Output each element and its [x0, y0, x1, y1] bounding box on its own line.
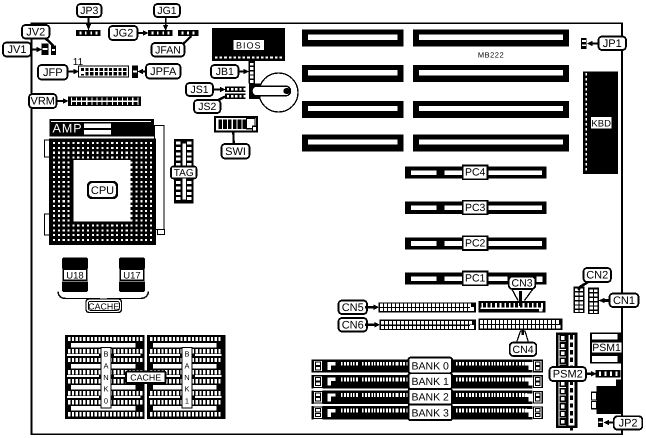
svg-text:JV1: JV1 [8, 44, 27, 56]
svg-text:CN5: CN5 [342, 302, 364, 314]
svg-text:CN6: CN6 [342, 319, 364, 331]
svg-text:BIOS: BIOS [236, 40, 262, 50]
svg-text:K: K [103, 385, 108, 394]
svg-text:BANK 1: BANK 1 [412, 376, 450, 388]
svg-text:JP2: JP2 [619, 418, 638, 430]
svg-text:JPFA: JPFA [150, 66, 177, 78]
svg-text:PSM1: PSM1 [592, 342, 621, 354]
svg-text:JV2: JV2 [26, 26, 45, 38]
svg-text:PC4: PC4 [465, 167, 486, 179]
svg-text:JP1: JP1 [603, 38, 622, 50]
svg-text:CACHE: CACHE [88, 301, 119, 311]
svg-text:CN4: CN4 [513, 344, 534, 356]
svg-text:JG2: JG2 [113, 28, 133, 40]
svg-text:CACHE: CACHE [130, 372, 161, 382]
svg-text:JFAN: JFAN [155, 44, 181, 56]
svg-text:A: A [184, 361, 189, 370]
svg-text:JS1: JS1 [190, 84, 208, 96]
svg-text:BANK 3: BANK 3 [412, 407, 450, 419]
svg-text:SWI: SWI [225, 146, 246, 158]
svg-text:B: B [184, 350, 189, 359]
svg-text:PSM2: PSM2 [553, 369, 583, 381]
svg-text:MB222: MB222 [478, 51, 504, 60]
svg-text:BANK 0: BANK 0 [412, 360, 450, 372]
svg-text:PC3: PC3 [465, 202, 486, 214]
svg-text:CN1: CN1 [613, 295, 635, 307]
svg-text:B: B [103, 350, 108, 359]
svg-text:JS2: JS2 [198, 101, 216, 113]
svg-text:U18: U18 [66, 271, 83, 282]
svg-text:A: A [103, 361, 108, 370]
svg-text:VRM: VRM [31, 96, 55, 108]
svg-text:K: K [184, 385, 189, 394]
svg-text:JP3: JP3 [80, 5, 98, 17]
svg-text:PC1: PC1 [465, 273, 486, 285]
svg-text:CPU: CPU [91, 185, 114, 197]
svg-text:N: N [103, 373, 108, 382]
svg-text:JG1: JG1 [157, 5, 176, 17]
svg-text:CN3: CN3 [512, 277, 533, 289]
svg-text:1: 1 [185, 396, 189, 405]
svg-text:JB1: JB1 [216, 66, 234, 78]
svg-text:TAG: TAG [174, 168, 194, 179]
svg-text:KBD: KBD [591, 118, 611, 129]
svg-text:U17: U17 [123, 271, 140, 282]
svg-text:0: 0 [104, 396, 108, 405]
svg-text:JFP: JFP [43, 67, 63, 79]
svg-text:AMP: AMP [53, 121, 83, 135]
svg-text:PC2: PC2 [465, 238, 486, 250]
svg-text:N: N [184, 373, 189, 382]
svg-text:CN2: CN2 [586, 270, 608, 282]
svg-text:11: 11 [73, 57, 84, 68]
svg-text:BANK 2: BANK 2 [412, 392, 450, 404]
